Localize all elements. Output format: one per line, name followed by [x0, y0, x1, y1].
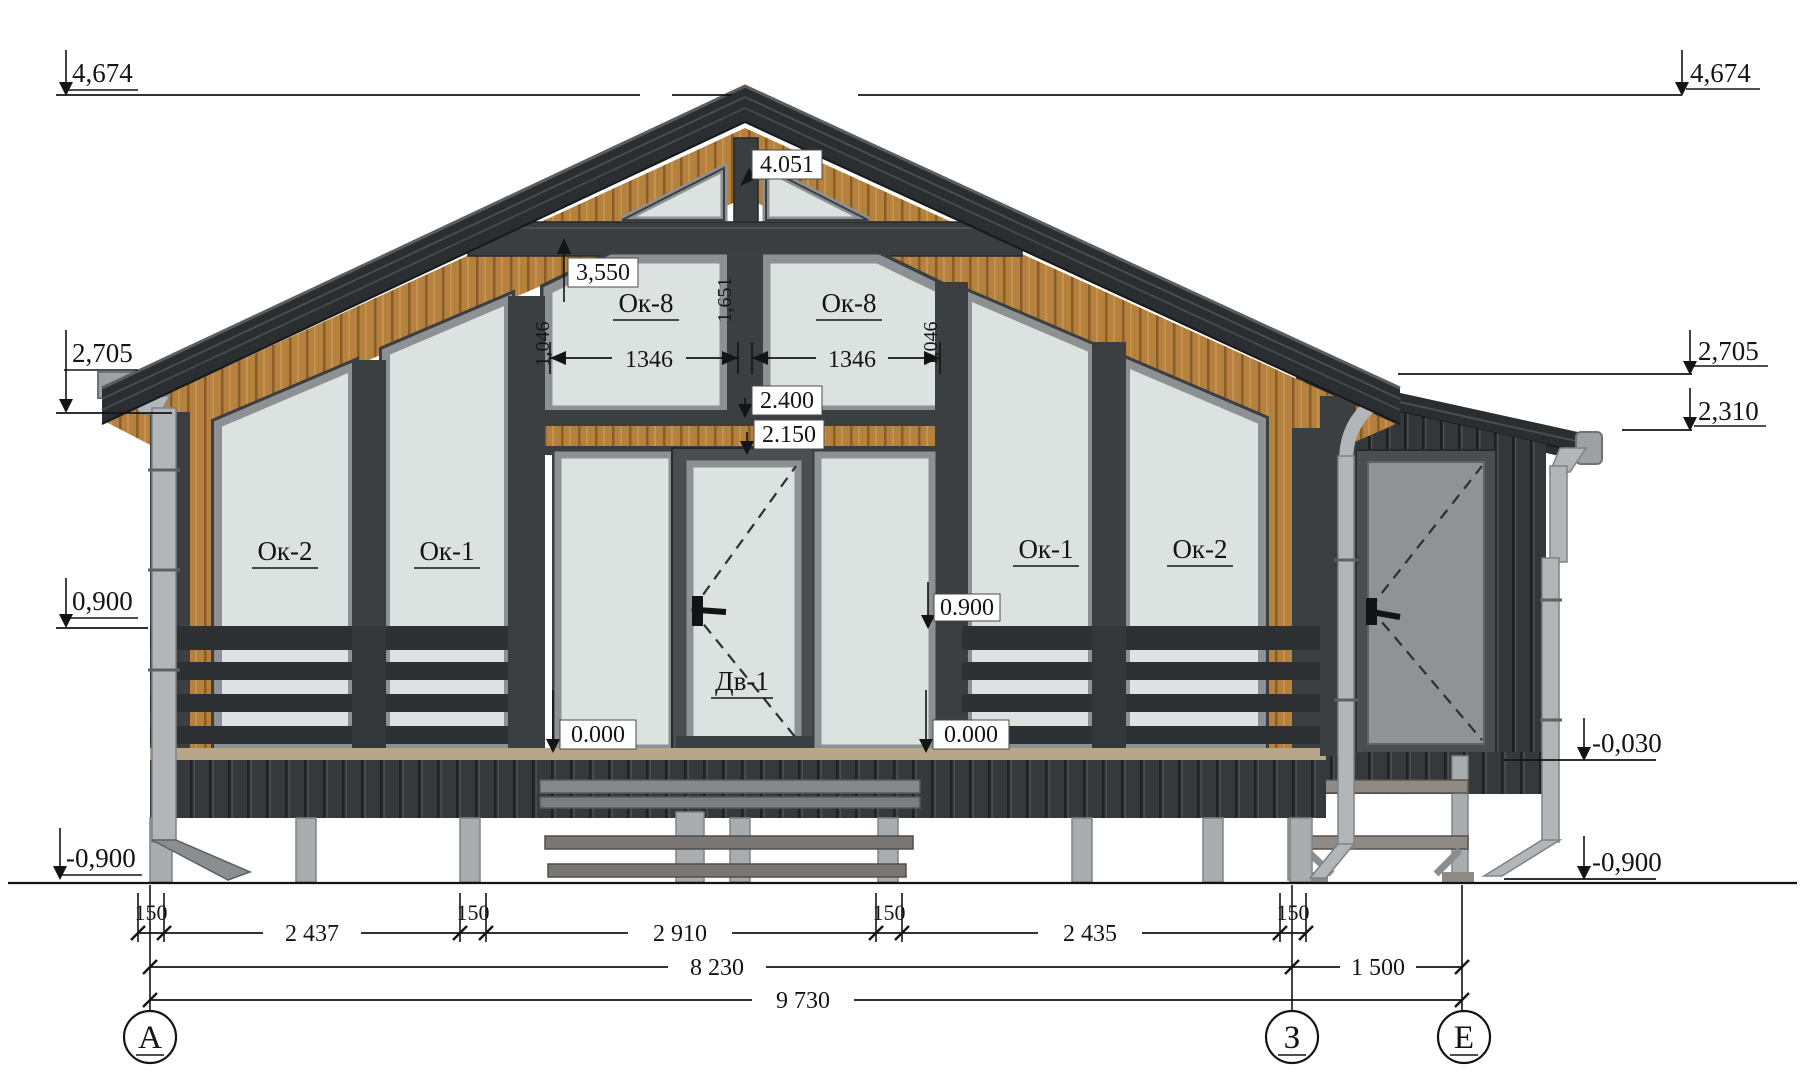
- mark-text: 0.900: [940, 595, 994, 621]
- level-text: 4,674: [72, 58, 133, 88]
- label-ok2-right: Ок-2: [1172, 534, 1227, 564]
- dim-150-3: 150: [873, 900, 906, 925]
- entrance-glass-left: [558, 455, 672, 748]
- axis-letter: А: [138, 1020, 162, 1056]
- dim-1500: 1 500: [1351, 955, 1405, 981]
- lintel-wood-strip: [508, 426, 935, 446]
- axis-bubble-e: Е: [1438, 1011, 1490, 1063]
- level-mark-right-4674: 4,674: [858, 50, 1760, 96]
- mark-text: 0.000: [944, 722, 998, 748]
- dim-text: 1346: [828, 347, 876, 373]
- dim-height-center: 1,651: [714, 278, 736, 323]
- level-text: -0,030: [1592, 728, 1662, 758]
- level-text: -0,900: [66, 843, 136, 873]
- axis-letter: З: [1284, 1020, 1301, 1056]
- entrance-glass-right: [818, 455, 932, 748]
- axis-bubble-a: А: [124, 1011, 176, 1063]
- label-door-dv1: Дв-1: [715, 666, 769, 696]
- mark-text: 2.400: [760, 388, 814, 414]
- dim-row3: 9 730: [143, 988, 1469, 1014]
- level-mark-right-2310: 2,310: [1622, 388, 1766, 431]
- dim-2437: 2 437: [285, 921, 339, 947]
- label-ok8-left: Ок-8: [618, 288, 673, 318]
- dim-row1: 150 2 437 150 2 910 150 2 435 150: [131, 900, 1313, 947]
- elevation-drawing: 4,674 2,705 0,900 -0,900 4,674 2,705: [0, 0, 1805, 1080]
- dim-9730: 9 730: [776, 988, 830, 1014]
- dim-height-right: 1,046: [920, 322, 942, 367]
- level-text: 2,705: [1698, 336, 1759, 366]
- mark-text: 2.150: [762, 422, 816, 448]
- elevation-canvas: 4,674 2,705 0,900 -0,900 4,674 2,705: [0, 0, 1805, 1080]
- label-ok1-right: Ок-1: [1018, 534, 1073, 564]
- dim-150-4: 150: [1277, 900, 1310, 925]
- window-ok1-left: [386, 300, 508, 748]
- level-text: 0,900: [72, 586, 133, 616]
- dim-8230: 8 230: [690, 955, 744, 981]
- lintel-band: [508, 410, 935, 426]
- dim-height-left: 1,046: [532, 322, 554, 367]
- mark-text: 0.000: [571, 722, 625, 748]
- dim-row2: 8 230 1 500: [143, 955, 1469, 981]
- mark-text: 3,550: [576, 260, 630, 286]
- annex-porch-rail-bottom: [1298, 836, 1468, 849]
- level-text: -0,900: [1592, 847, 1662, 877]
- level-mark-left-m0900: -0,900: [53, 828, 142, 880]
- dim-2435: 2 435: [1063, 921, 1117, 947]
- main-house: [98, 128, 1396, 882]
- level-text: 4,674: [1690, 58, 1751, 88]
- window-ok1-right: [968, 296, 1092, 748]
- annex-door-panel: [1368, 462, 1484, 744]
- level-text: 2,705: [72, 338, 133, 368]
- level-mark-right-2705: 2,705: [1398, 330, 1768, 375]
- level-mark-left-4674: 4,674: [56, 50, 732, 96]
- dim-150-2: 150: [457, 900, 490, 925]
- label-ok1-left: Ок-1: [419, 536, 474, 566]
- level-mark-left-0900: 0,900: [56, 578, 148, 628]
- level-text: 2,310: [1698, 396, 1759, 426]
- dim-text: 1346: [625, 347, 673, 373]
- deck-edge: [150, 748, 1326, 760]
- door-dv1: [676, 464, 816, 754]
- label-ok2-left: Ок-2: [257, 536, 312, 566]
- mark-text: 4.051: [760, 152, 814, 178]
- label-ok8-right: Ок-8: [821, 288, 876, 318]
- dimension-rows: 150 2 437 150 2 910 150 2 435 150 8 230 …: [124, 885, 1490, 1063]
- dim-2910: 2 910: [653, 921, 707, 947]
- annex-porch-post-right: [1452, 756, 1468, 880]
- axis-bubble-z: З: [1266, 1011, 1318, 1063]
- axis-letter: Е: [1454, 1020, 1474, 1056]
- dim-150-1: 150: [135, 900, 168, 925]
